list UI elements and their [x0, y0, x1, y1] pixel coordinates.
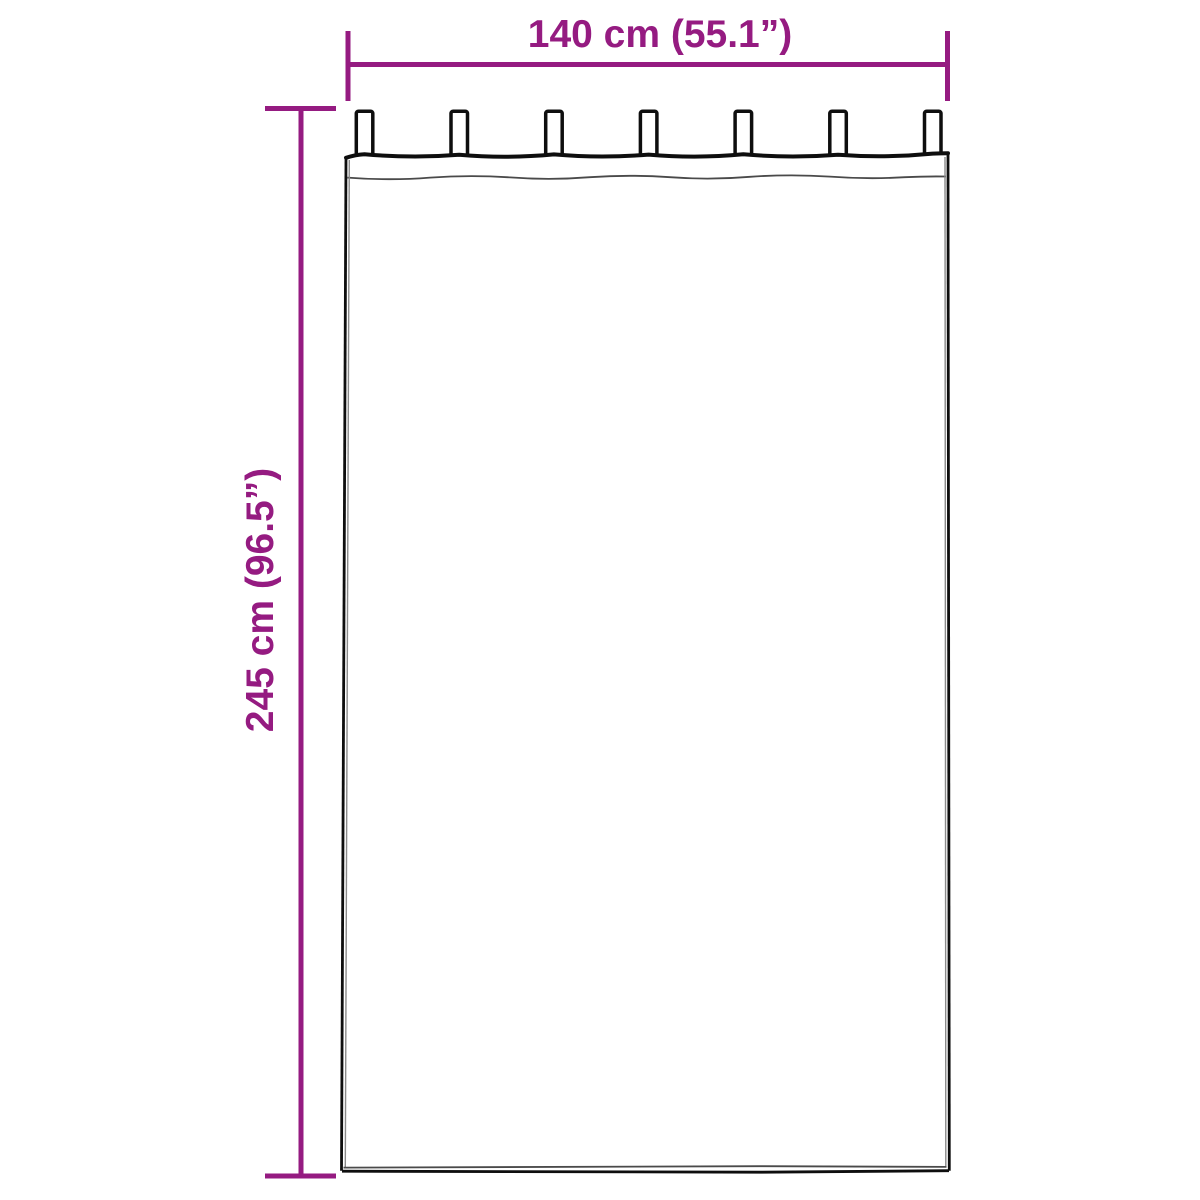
svg-text:140 cm (55.1”): 140 cm (55.1”)	[528, 13, 793, 56]
svg-text:245 cm (96.5”): 245 cm (96.5”)	[239, 468, 282, 733]
